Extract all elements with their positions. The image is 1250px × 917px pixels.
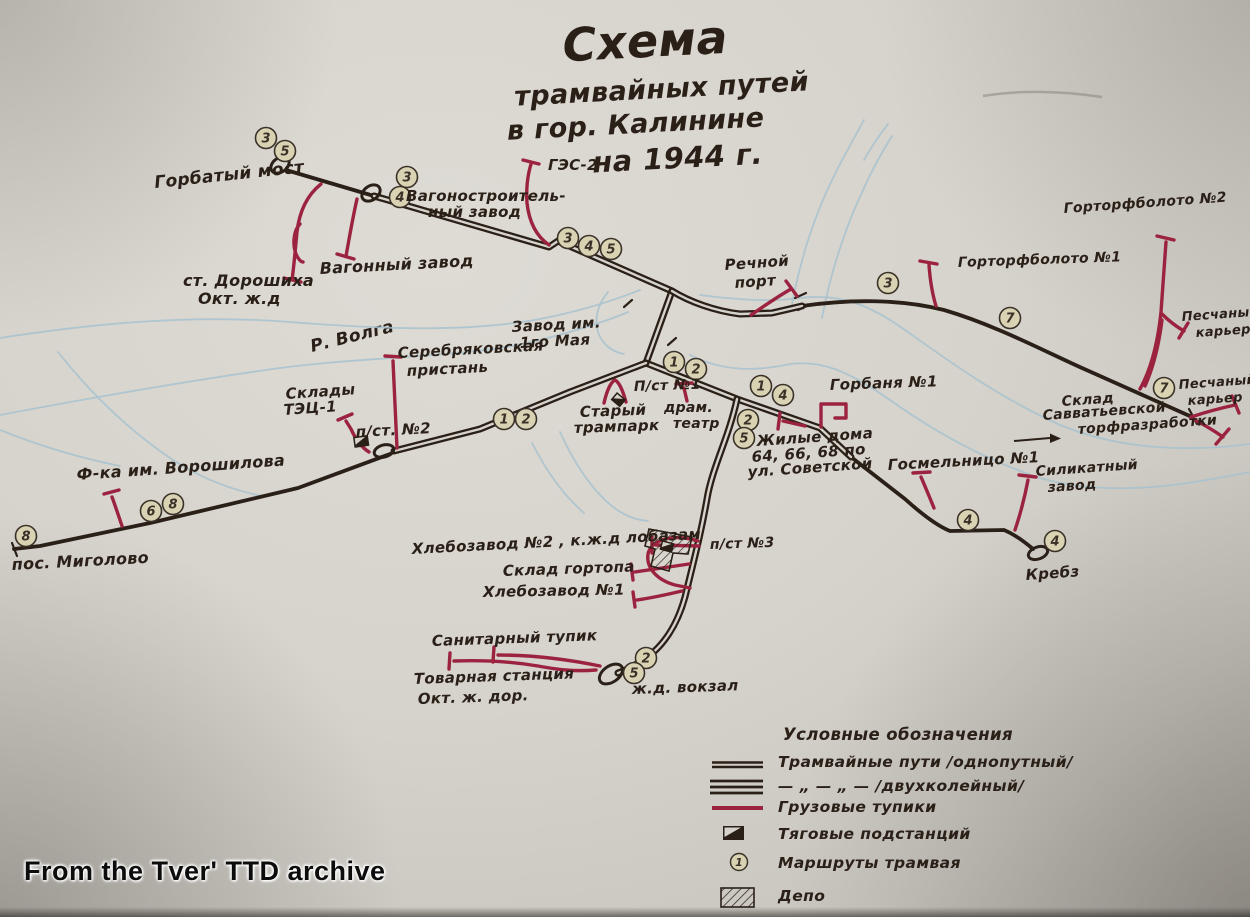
freight-siding [920, 261, 937, 306]
route-badge-number: 5 [739, 432, 748, 447]
map-label: Горторфболото №1 [958, 249, 1122, 271]
map-label: Склад гортопа [503, 557, 635, 580]
map-label: ГЭС-2 [548, 156, 598, 174]
map-label: Горбаня №1 [830, 372, 938, 394]
route-badge-number: 4 [962, 514, 972, 529]
river-label: Р. Волга [308, 317, 396, 357]
route-badge: 7 [1000, 308, 1021, 329]
route-badge-number: 1 [756, 380, 765, 395]
map-label: П/ст №1 [634, 377, 701, 395]
route-badge-number: 6 [146, 505, 155, 520]
map-canvas: Схема трамвайных путей в гор. Калинине н… [0, 0, 1250, 917]
freight-siding [284, 184, 321, 282]
terminal-loop [373, 443, 395, 460]
legend: Условные обозначения Трамвайные пути /од… [777, 725, 1074, 905]
route-badge: 4 [1045, 531, 1066, 552]
map-label: ст. Дорошиха [183, 271, 314, 290]
route-badge: 3 [878, 273, 899, 294]
route-badge: 8 [16, 526, 37, 547]
archive-photo: Схема трамвайных путей в гор. Калинине н… [0, 0, 1250, 917]
route-badge-number: 2 [641, 652, 650, 667]
map-label: Кребз [1025, 562, 1080, 584]
route-badge-number: 4 [1049, 535, 1059, 550]
river-path [532, 443, 584, 513]
legend-label-single-track: Трамвайные пути /однопутный/ [778, 753, 1074, 771]
route-badge-number: 3 [261, 132, 270, 147]
map-label: пристань [406, 358, 488, 380]
legend-label-freight-sidings: Грузовые тупики [778, 798, 937, 816]
watermark: From the Tver' TTD archive [24, 856, 386, 887]
map-label: Хлебозавод №1 [482, 581, 625, 601]
route-badge: 2 [516, 409, 537, 430]
map-label: ТЭЦ-1 [283, 397, 337, 419]
map-label: Речной [724, 252, 790, 274]
freight-siding [337, 199, 357, 259]
legend-label-depot: Депо [777, 887, 825, 905]
map-label: драм. [663, 400, 713, 416]
route-badge: 4 [773, 385, 794, 406]
route-badge: 5 [734, 428, 755, 449]
route-badge: 1 [664, 352, 685, 373]
tram-line-double-core [646, 291, 672, 363]
map-label: Горторфболото №2 [1063, 190, 1227, 217]
route-badge-number: 7 [1005, 312, 1015, 327]
route-badge: 6 [141, 501, 162, 522]
route-badge: 4 [579, 236, 600, 257]
map-label: Ф-ка им. Ворошилова [76, 450, 286, 484]
route-badge-number: 3 [883, 277, 892, 292]
route-badge: 4 [958, 510, 979, 531]
map-label: пос. Миголово [11, 548, 149, 574]
route-badge: 3 [558, 228, 579, 249]
legend-route-badge-number: 1 [735, 856, 743, 869]
river-path [864, 124, 888, 160]
bridge-tick [624, 300, 632, 307]
route-badge-number: 2 [691, 363, 700, 378]
map-label: карьер [1195, 322, 1250, 341]
route-badge-number: 8 [168, 498, 177, 513]
terminal-loop [596, 660, 626, 688]
map-label: порт [734, 271, 777, 292]
route-badge: 7 [1154, 378, 1175, 399]
freight-siding [821, 404, 846, 427]
photo-stain [983, 92, 1102, 97]
map-label: п/ст №3 [710, 535, 775, 553]
legend-label-double-track: — „ — „ — /двухколейный/ [778, 777, 1025, 795]
label-layer: Горбатый мостст. ДорошихаОкт. ж.дВагонны… [11, 156, 1250, 708]
legend-depot-symbol [721, 888, 754, 907]
route-badge-number: 7 [1159, 382, 1169, 397]
map-label: трампарк [574, 416, 661, 437]
route-badge: 8 [163, 494, 184, 515]
route-badge-number: 4 [777, 389, 787, 404]
route-badge-number: 3 [563, 232, 572, 247]
map-label: 1го Мая [519, 330, 590, 352]
route-badge-number: 5 [280, 145, 289, 160]
river-path [560, 432, 648, 521]
legend-label-traction-substations: Тяговые подстанций [778, 825, 971, 843]
map-title-line2: трамвайных путей [513, 66, 809, 112]
route-badge: 1 [751, 376, 772, 397]
route-badge-number: 1 [669, 356, 678, 371]
freight-siding [104, 490, 122, 526]
map-label: Горбатый мост [153, 157, 306, 193]
route-badge: 3 [256, 128, 277, 149]
route-badge: 5 [601, 239, 622, 260]
route-badge-number: 5 [606, 243, 615, 258]
freight-siding [633, 591, 682, 607]
map-label: ж.д. вокзал [631, 676, 739, 698]
legend-title: Условные обозначения [783, 725, 1013, 744]
route-badge-number: 2 [521, 413, 530, 428]
route-badge: 3 [397, 167, 418, 188]
map-label: Товарная станция [414, 664, 575, 688]
freight-siding [1015, 475, 1036, 530]
tram-line-single [802, 301, 1192, 417]
flow-arrow [1014, 438, 1050, 441]
route-badge-number: 2 [743, 414, 752, 429]
map-title-line4: на 1944 г. [591, 137, 763, 180]
legend-substation-symbol [723, 826, 744, 840]
map-title-line1: Схема [561, 10, 729, 73]
map-label: п/ст. №2 [355, 419, 431, 441]
route-badge-number: 8 [21, 530, 30, 545]
route-badge: 1 [494, 409, 515, 430]
map-label: Окт. ж.д [198, 289, 281, 308]
river-path [0, 430, 120, 466]
map-label: ный завод [428, 203, 521, 221]
bridge-tick [668, 338, 676, 345]
route-badge-number: 4 [583, 240, 593, 255]
route-badge-number: 3 [402, 171, 411, 186]
legend-label-tram-routes: Маршруты трамвая [778, 854, 961, 872]
tram-line-double-core [374, 196, 672, 291]
map-label: театр [673, 416, 720, 432]
route-badge-number: 4 [394, 191, 404, 206]
map-label: Санитарный тупик [432, 626, 599, 650]
map-label: Окт. ж. дор. [418, 686, 529, 708]
flow-arrow-head [1050, 434, 1061, 444]
title-block: Схема трамвайных путей в гор. Калинине н… [506, 10, 810, 180]
route-badge-number: 1 [499, 413, 508, 428]
legend-symbol-layer: 1 [710, 763, 763, 908]
freight-siding [913, 472, 934, 508]
map-label: завод [1046, 477, 1097, 496]
